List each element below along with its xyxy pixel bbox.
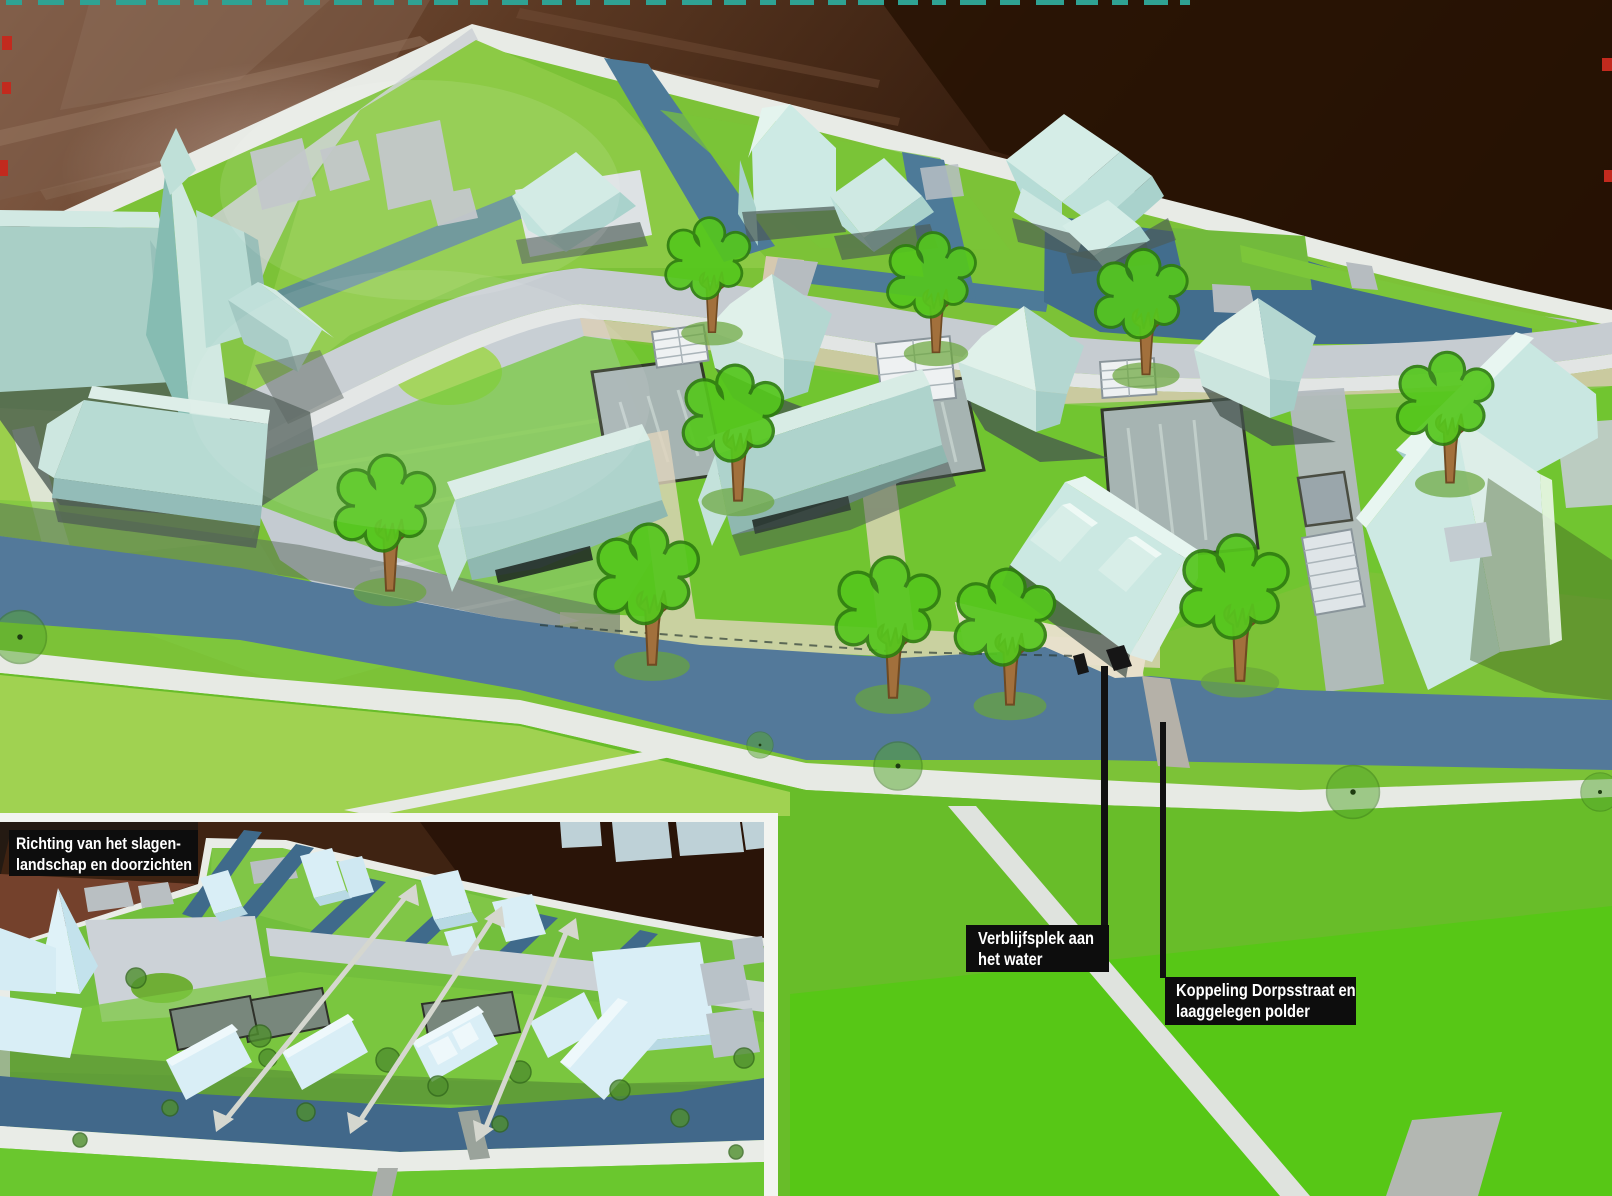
svg-text:Verblijfsplek aan: Verblijfsplek aan (978, 929, 1094, 948)
svg-text:Koppeling Dorpsstraat en: Koppeling Dorpsstraat en (1176, 981, 1356, 1000)
svg-text:Richting van het slagen-: Richting van het slagen- (16, 835, 181, 853)
svg-text:het water: het water (978, 950, 1043, 969)
svg-text:landschap en doorzichten: landschap en doorzichten (16, 856, 192, 874)
svg-text:laaggelegen polder: laaggelegen polder (1176, 1002, 1311, 1021)
